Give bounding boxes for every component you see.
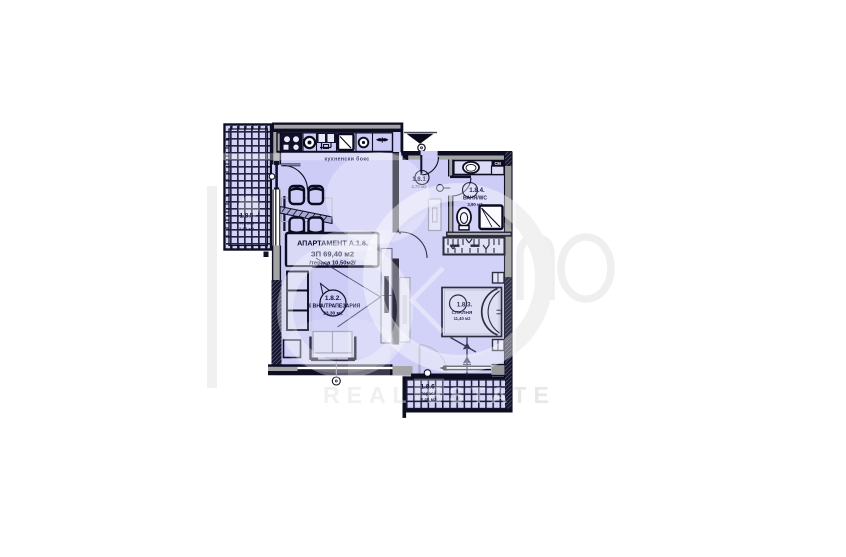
svg-text:тераса: тераса bbox=[239, 221, 254, 226]
svg-text:8,40 м2: 8,40 м2 bbox=[420, 397, 437, 402]
svg-text:1.8.2.: 1.8.2. bbox=[325, 295, 341, 302]
svg-text:1.8.5: 1.8.5 bbox=[240, 213, 254, 220]
svg-text:1.8.6.: 1.8.6. bbox=[421, 384, 437, 391]
svg-text:тераса: тераса bbox=[421, 391, 437, 396]
svg-text:СМ: СМ bbox=[494, 161, 501, 166]
svg-text:3,90 м2: 3,90 м2 bbox=[467, 202, 483, 207]
svg-text:23,30 м2: 23,30 м2 bbox=[323, 311, 343, 317]
svg-text:2,60 м2: 2,60 м2 bbox=[239, 227, 255, 232]
svg-text:кухненски бокс: кухненски бокс bbox=[324, 155, 369, 162]
